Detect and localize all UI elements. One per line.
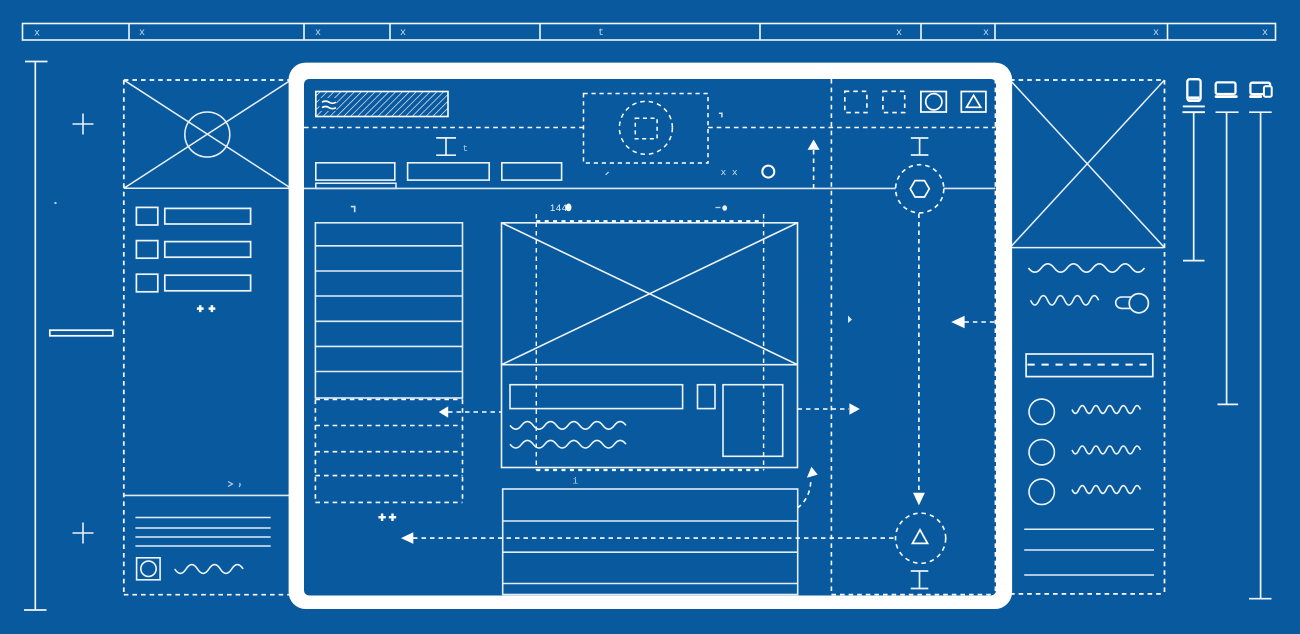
svg-text:t: t bbox=[598, 28, 604, 39]
svg-text:x: x bbox=[1153, 28, 1159, 39]
svg-text:x: x bbox=[896, 28, 902, 39]
svg-text:x: x bbox=[1262, 28, 1268, 39]
svg-text:t: t bbox=[463, 143, 469, 154]
svg-text:x: x bbox=[400, 28, 406, 39]
svg-text:x: x bbox=[315, 28, 321, 39]
svg-text:x: x bbox=[34, 29, 40, 40]
svg-text:x: x bbox=[139, 28, 145, 39]
svg-text:i: i bbox=[573, 476, 579, 487]
svg-text:x: x bbox=[983, 28, 989, 39]
svg-text:x x: x x bbox=[721, 167, 738, 178]
svg-text:144: 144 bbox=[550, 203, 568, 214]
